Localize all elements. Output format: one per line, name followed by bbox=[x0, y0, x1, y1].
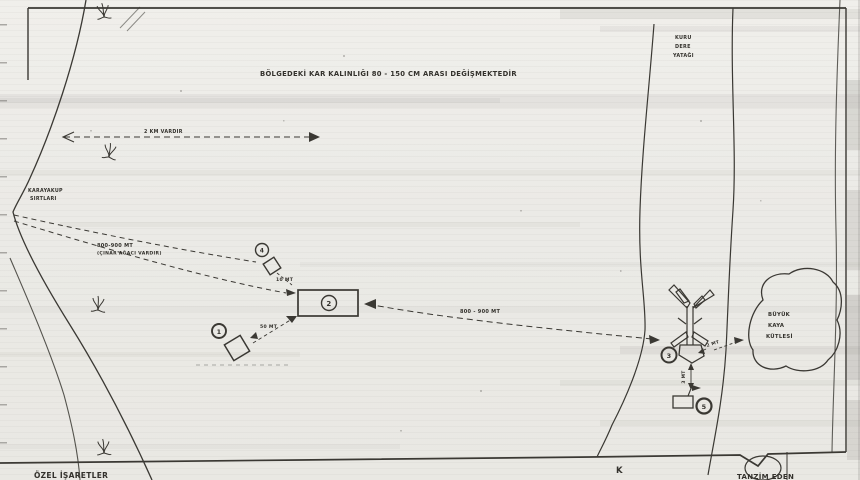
marker-1-number: 1 bbox=[217, 328, 222, 336]
stream-name-line2: DERE bbox=[675, 44, 691, 50]
approach-distance-label: 800-900 MT bbox=[97, 243, 133, 249]
distance-3mt-label: 3 MT bbox=[681, 370, 687, 383]
pencil-marks bbox=[120, 7, 145, 31]
bush-icon bbox=[102, 142, 118, 160]
ridge-name-line1: KARAYAKUP bbox=[28, 188, 63, 194]
scanner-feed-marks bbox=[0, 24, 7, 444]
special-marks-heading: ÖZEL İŞARETLER bbox=[34, 471, 108, 480]
sightline-to-building bbox=[14, 221, 286, 293]
connector-1 bbox=[253, 319, 292, 343]
arrowhead-icon bbox=[734, 337, 744, 344]
diamond-1-feature: 1 bbox=[196, 316, 297, 365]
speckles bbox=[90, 55, 762, 432]
distance-50mt-label: 50 MT bbox=[260, 324, 278, 330]
arrowhead-icon bbox=[250, 332, 258, 339]
north-k-mark: K bbox=[616, 466, 623, 476]
arrowhead-icon bbox=[688, 363, 694, 370]
rock-name-line2: KAYA bbox=[768, 323, 785, 329]
distance-2km-label: 2 KM VARDIR bbox=[144, 129, 183, 135]
rock-mass-outline bbox=[749, 268, 842, 370]
scanned-sketch-map: 2 4 1 3 bbox=[0, 0, 860, 480]
arrowhead-icon bbox=[286, 289, 296, 296]
approach-note-label: (ÇINAR AĞACI VARDIR) bbox=[97, 250, 162, 257]
prepared-by-heading: TANZİM EDEN bbox=[737, 472, 794, 480]
stream-name-line1: KURU bbox=[675, 35, 692, 41]
bush-icon bbox=[95, 2, 112, 20]
mid-distance-label: 800 - 900 MT bbox=[460, 309, 500, 315]
arrowhead-icon bbox=[649, 335, 660, 344]
route-line-mid bbox=[364, 299, 660, 344]
marker-3-number: 3 bbox=[667, 352, 672, 360]
rock-name-line3: KÜTLESİ bbox=[766, 333, 793, 340]
ridge-name-line2: SIRTLARI bbox=[30, 196, 57, 202]
map-border-bottom bbox=[0, 452, 846, 466]
stream-name-line3: YATAĞI bbox=[672, 52, 694, 59]
stream-line-west bbox=[597, 24, 654, 457]
rock-name-line1: BÜYÜK bbox=[768, 311, 791, 318]
arrowhead-icon bbox=[309, 132, 320, 142]
map-canvas: 2 4 1 3 bbox=[0, 0, 860, 480]
marker-2-number: 2 bbox=[326, 300, 331, 308]
marker-5: 5 bbox=[697, 399, 712, 414]
survey-line-2km bbox=[63, 132, 320, 142]
snow-depth-note: BÖLGEDEKİ KAR KALINLIĞI 80 - 150 CM ARAS… bbox=[260, 69, 517, 78]
marker-5-number: 5 bbox=[702, 403, 707, 411]
distance-10mt-label: 10 MT bbox=[276, 277, 294, 283]
marker-4-number: 4 bbox=[260, 248, 264, 255]
